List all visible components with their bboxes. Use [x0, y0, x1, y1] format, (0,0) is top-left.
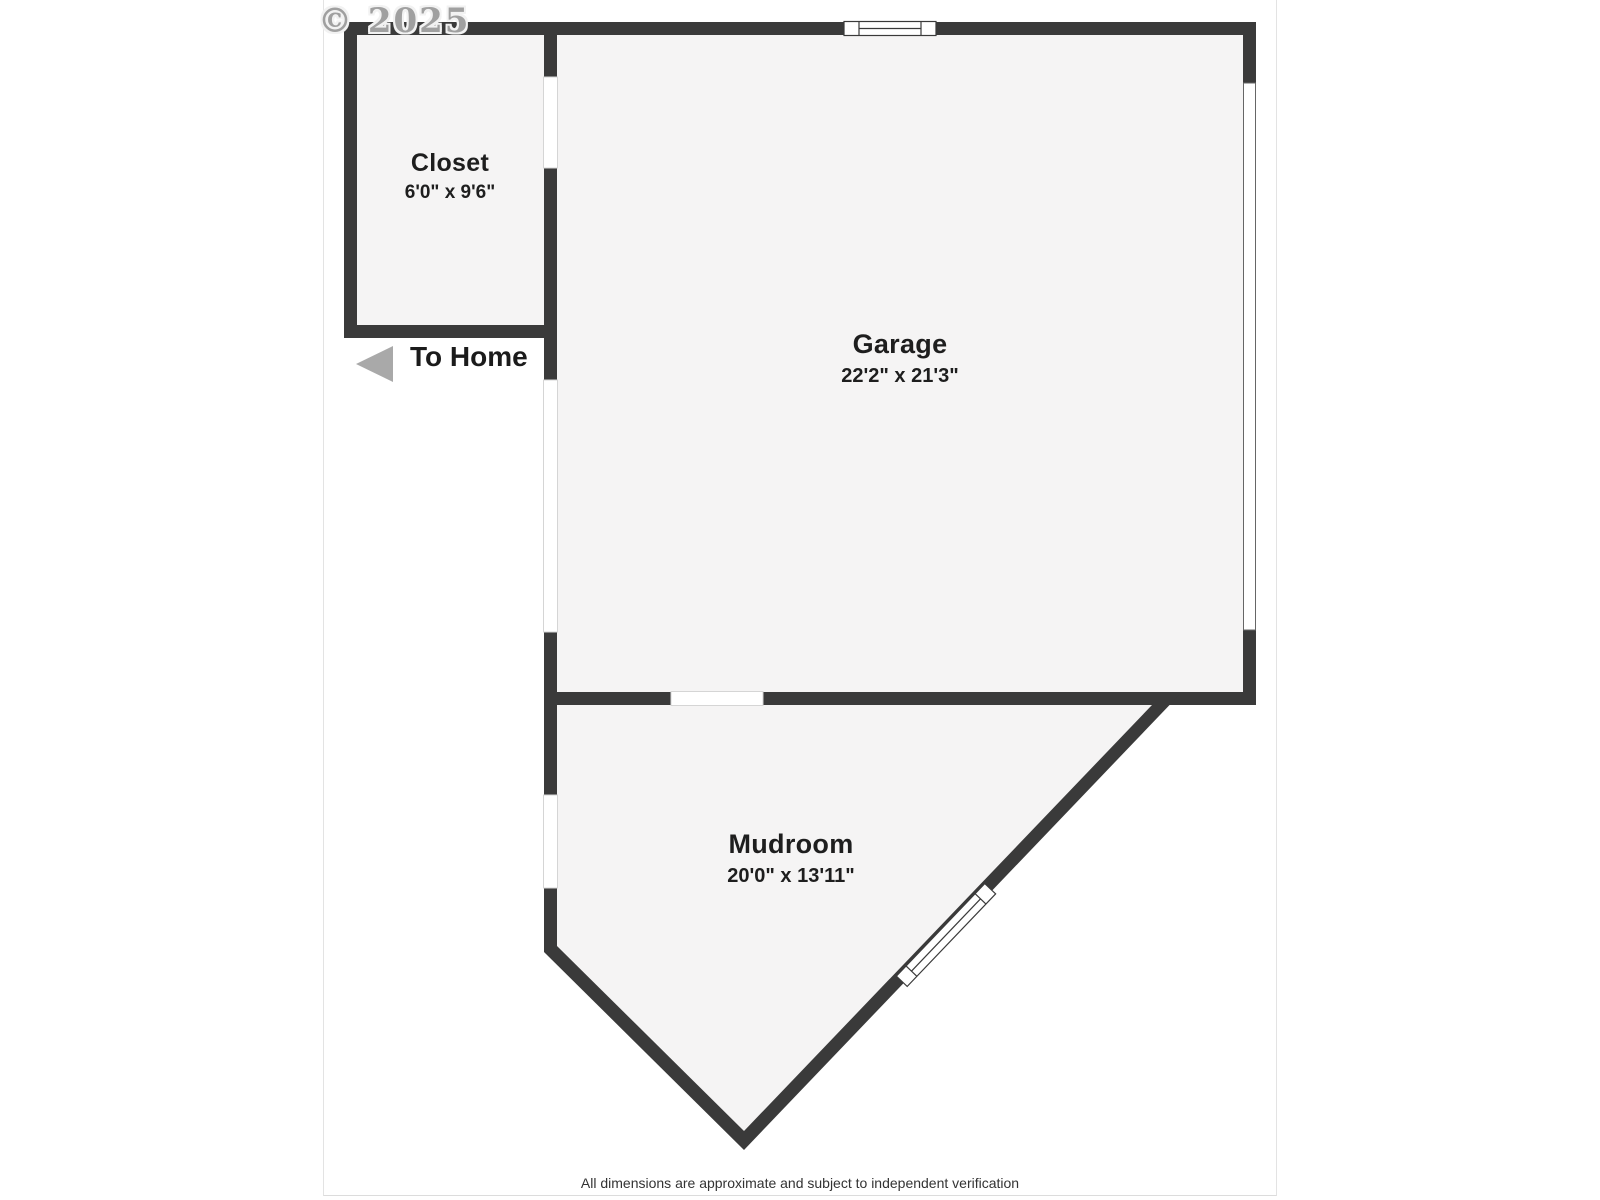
garage-door-opening: [1244, 83, 1256, 630]
mudroom-floor: [557, 705, 1152, 1131]
mudroom-home-opening: [544, 795, 558, 888]
copyright-watermark: © 2025: [318, 1, 470, 41]
garage-home-opening: [544, 380, 558, 632]
to-home-label: To Home: [410, 341, 528, 373]
closet-garage-opening: [544, 77, 558, 168]
to-home-arrow-icon: [356, 346, 393, 382]
closet-floor: [357, 35, 544, 325]
garage-top-window-icon: [844, 22, 936, 36]
garage-floor: [557, 35, 1243, 692]
footer-disclaimer: All dimensions are approximate and subje…: [324, 1175, 1276, 1191]
floor-plan-image: © 2025 Closet 6'0" x 9'6" Garage 22'2" x…: [323, 0, 1277, 1196]
room-floors: [357, 35, 1243, 1131]
floor-plan-svg: [324, 0, 1276, 1195]
garage-mudroom-opening: [671, 692, 763, 706]
